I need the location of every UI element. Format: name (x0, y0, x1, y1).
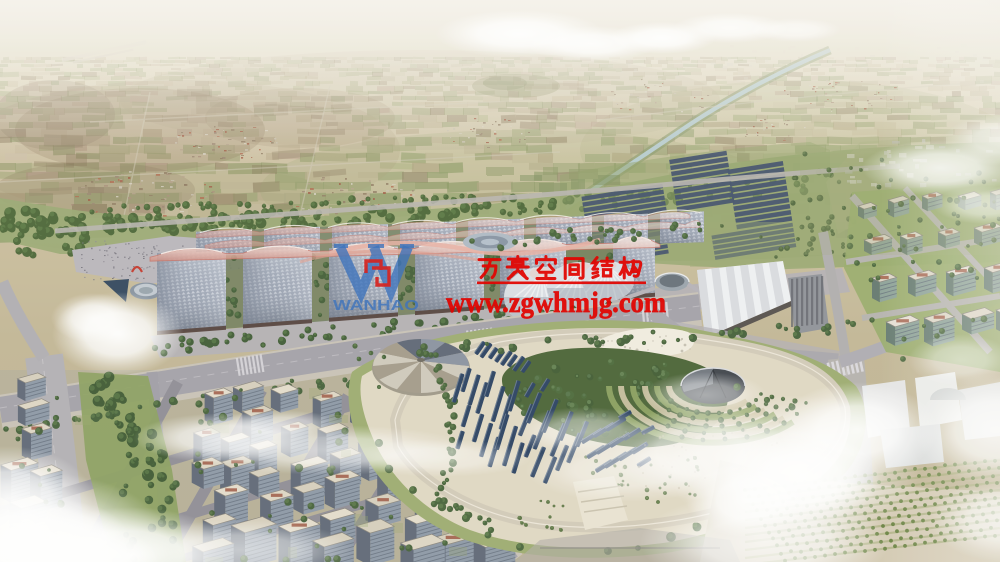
svg-text:WANHAO: WANHAO (333, 298, 419, 314)
svg-text:www.zgwhmjg.com: www.zgwhmjg.com (446, 286, 666, 319)
